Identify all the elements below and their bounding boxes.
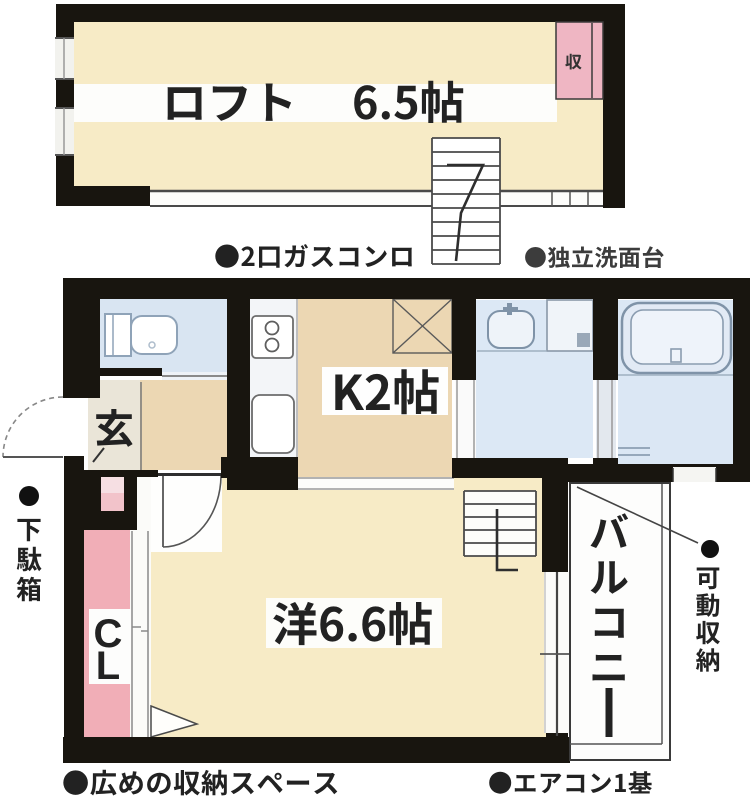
svg-text:L: L <box>96 644 120 688</box>
